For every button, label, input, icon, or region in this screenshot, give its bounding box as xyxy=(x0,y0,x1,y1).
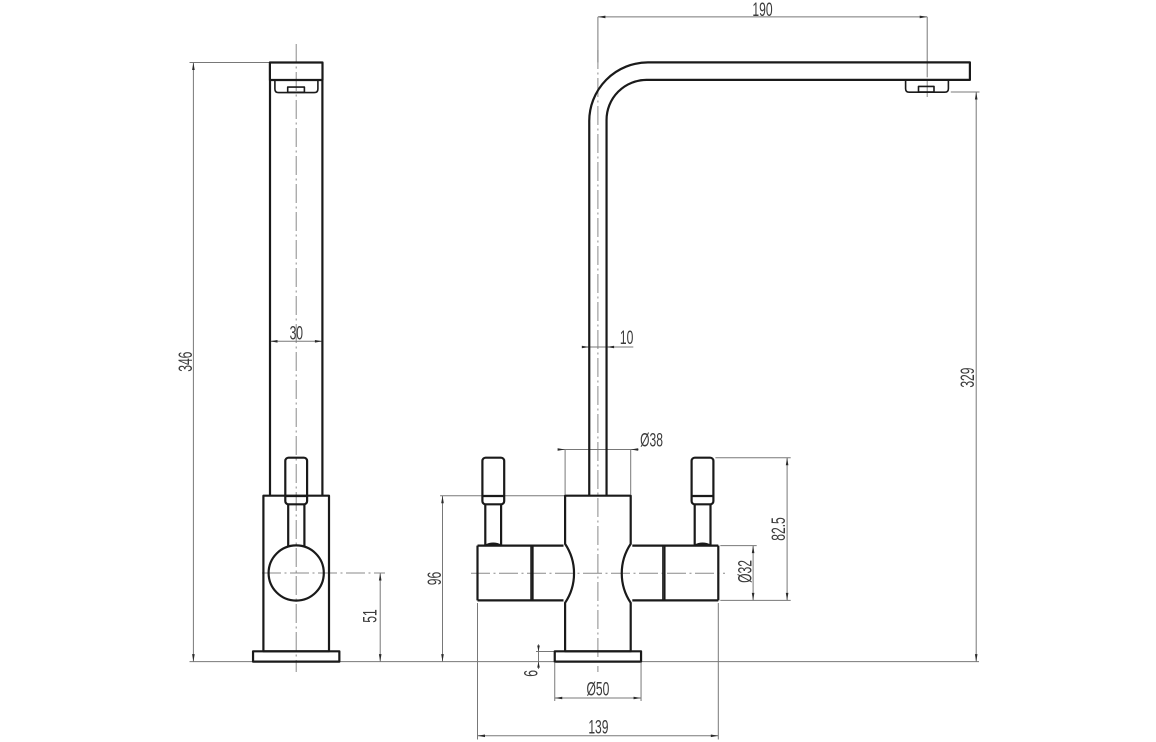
svg-text:Ø50: Ø50 xyxy=(586,679,609,701)
svg-text:Ø38: Ø38 xyxy=(640,430,663,452)
svg-text:82.5: 82.5 xyxy=(768,517,790,541)
svg-text:96: 96 xyxy=(424,572,446,585)
svg-text:139: 139 xyxy=(588,717,608,739)
svg-text:Ø32: Ø32 xyxy=(734,560,756,583)
svg-text:10: 10 xyxy=(620,327,633,349)
svg-text:346: 346 xyxy=(175,352,197,372)
svg-text:329: 329 xyxy=(957,368,979,388)
svg-text:190: 190 xyxy=(752,0,772,21)
svg-text:51: 51 xyxy=(360,609,382,622)
svg-text:6: 6 xyxy=(521,670,543,677)
svg-text:30: 30 xyxy=(290,322,303,344)
